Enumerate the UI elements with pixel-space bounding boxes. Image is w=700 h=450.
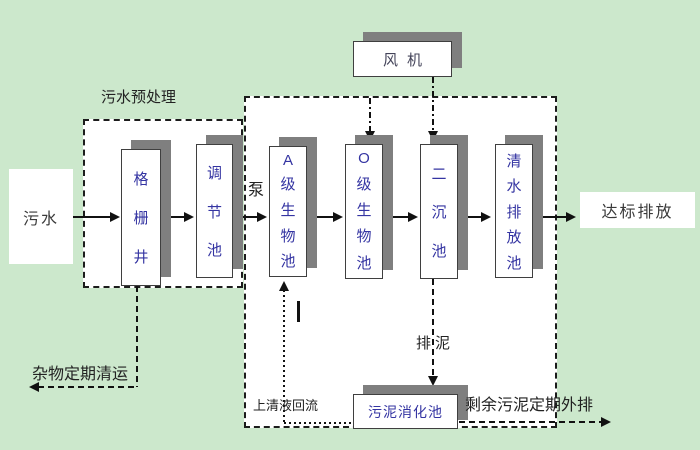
arrowhead-tank-a-to-tank-o bbox=[333, 212, 343, 222]
sludge-digestion-box: 污泥消化池 bbox=[353, 394, 458, 429]
flow-line-tank-o-to-secondary bbox=[385, 216, 410, 218]
flow-line-gridwell-to-regulating bbox=[162, 216, 186, 218]
air-line-fan-main bbox=[432, 77, 434, 133]
regulating-tank-box: 调节池 bbox=[196, 144, 233, 278]
arrowhead-supernatant-return bbox=[279, 281, 289, 291]
flow-line-clearwater-to-discharge bbox=[535, 216, 568, 218]
flow-line-tank-a-to-tank-o bbox=[309, 216, 335, 218]
pump-label: 泵 bbox=[248, 182, 264, 200]
flow-line-regulating-to-tank-a bbox=[234, 216, 259, 218]
arrowhead-sludge-discharge bbox=[428, 376, 438, 386]
tank-a-box: A级生物池 bbox=[269, 146, 307, 277]
discharge-output-box: 达标排放 bbox=[580, 192, 695, 228]
arrowhead-excess-sludge bbox=[601, 417, 611, 427]
wastewater-source-box: 污水 bbox=[9, 169, 73, 264]
arrowhead-clearwater-to-discharge bbox=[566, 212, 576, 222]
clear-water-discharge-box: 清水排放池 bbox=[495, 144, 533, 278]
fan-box: 风机 bbox=[353, 41, 452, 77]
arrowhead-secondary-to-clearwater bbox=[481, 212, 491, 222]
grid-well-box: 格栅井 bbox=[121, 149, 161, 286]
supernatant-return-label: 上清液回流 bbox=[253, 399, 318, 414]
arrowhead-tank-o-to-secondary bbox=[408, 212, 418, 222]
debris-removal-label: 杂物定期清运 bbox=[32, 366, 128, 384]
tank-o-label: O级生物池 bbox=[346, 145, 382, 278]
pretreatment-title: 污水预处理 bbox=[101, 89, 176, 106]
tank-a-label: A级生物池 bbox=[270, 147, 306, 276]
sludge-discharge-label: 排泥 bbox=[416, 335, 454, 352]
vertical-tick-mark bbox=[297, 301, 300, 322]
flow-line-secondary-to-clearwater bbox=[459, 216, 483, 218]
clear-water-discharge-label: 清水排放池 bbox=[496, 145, 532, 277]
tank-o-box: O级生物池 bbox=[345, 144, 383, 279]
grid-well-label: 格栅井 bbox=[122, 150, 160, 285]
excess-sludge-label: 剩余污泥定期外排 bbox=[465, 397, 593, 415]
arrowhead-air-left bbox=[365, 131, 375, 141]
secondary-sedimentation-box: 二沉池 bbox=[420, 144, 458, 279]
arrowhead-air-right bbox=[428, 131, 438, 141]
regulating-tank-label: 调节池 bbox=[197, 145, 232, 277]
sludge-discharge-line bbox=[432, 279, 434, 377]
sludge-digestion-label: 污泥消化池 bbox=[368, 402, 443, 422]
debris-line-horizontal bbox=[38, 386, 136, 388]
air-line-fan-branch bbox=[369, 98, 371, 133]
arrowhead-source-to-gridwell bbox=[110, 212, 120, 222]
arrowhead-gridwell-to-regulating bbox=[184, 212, 194, 222]
arrowhead-regulating-to-tank-a bbox=[257, 212, 267, 222]
supernatant-line-horizontal bbox=[284, 422, 353, 424]
flow-line-source-to-gridwell bbox=[73, 216, 112, 218]
excess-sludge-line bbox=[459, 421, 603, 423]
debris-line-vertical bbox=[136, 286, 138, 387]
secondary-sedimentation-label: 二沉池 bbox=[421, 145, 457, 278]
fan-label: 风机 bbox=[374, 49, 431, 70]
wastewater-treatment-flow-diagram: 污水预处理 污水 达标排放 风机 格栅井 调节池 A级生物池 O级生物池 二沉池… bbox=[0, 0, 700, 450]
